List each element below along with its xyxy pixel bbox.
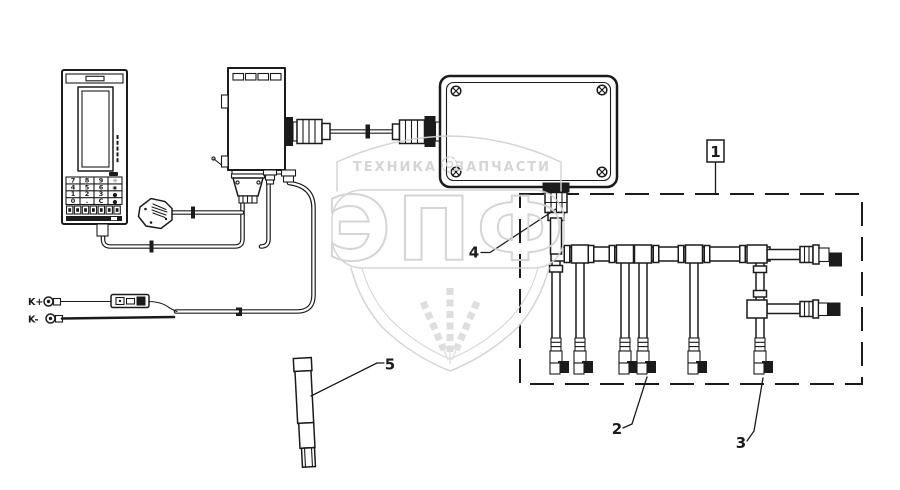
branch-connector (619, 338, 638, 374)
cable-ferrule (150, 241, 154, 253)
end-connector-lower (800, 300, 841, 318)
tee-junction (617, 245, 634, 263)
parts-diagram-canvas: K+ K- (0, 0, 900, 490)
pipe-collar (754, 291, 767, 298)
branch-connector (637, 338, 656, 374)
pipe-collar (588, 246, 594, 263)
callout-3-label: 3 (736, 434, 746, 452)
watermark-text-right: ЗАПЧАСТИ (455, 160, 551, 175)
tee-junction (635, 245, 652, 263)
keypad-function-icon: ● (113, 192, 118, 198)
operator-terminal: 7 8 9 4 5 6 1 2 3 0 . C ☼ ◉ ● ● (62, 70, 127, 236)
branch-connector (574, 338, 593, 374)
wheat-icon (423, 288, 477, 364)
positive-wire (148, 302, 177, 312)
corner-junction (747, 245, 767, 263)
callout-2: 2 (612, 377, 647, 438)
function-keys-row (67, 206, 121, 214)
harness-branch (767, 304, 800, 314)
tee-junction (747, 300, 767, 318)
gland-fitting (264, 170, 277, 184)
tee-junction (572, 245, 589, 263)
terminal-display (78, 87, 113, 171)
pipe-collar (754, 266, 767, 273)
callout-1: 1 (707, 140, 724, 194)
diagnostic-plug (139, 199, 173, 229)
branch-connector (550, 338, 569, 374)
wiring-diagram: K+ K- (0, 0, 900, 490)
keypad-key: 0 (71, 197, 76, 205)
dsub-connector (232, 174, 265, 203)
control-box-vents (233, 74, 281, 81)
screw-icon (597, 85, 607, 95)
keypad-function-icon: ● (113, 199, 118, 205)
end-connector-upper (800, 245, 842, 267)
callout-2-label: 2 (612, 420, 622, 438)
battery-leads: K+ K- (28, 295, 177, 326)
terminal-bottom-badge (111, 217, 117, 220)
callout-5-label: 5 (385, 356, 395, 374)
pipe-collar (678, 246, 684, 263)
battery-negative-label: K- (28, 315, 39, 326)
pipe-collar (609, 246, 615, 263)
battery-positive-label: K+ (28, 297, 43, 308)
watermark-main-text: ЭПФ (326, 178, 570, 281)
strap-part (293, 358, 317, 468)
harness-drop (690, 254, 698, 340)
pipe-collar (704, 246, 710, 263)
harness-drop (639, 254, 647, 340)
watermark-text-left: ТЕХНИКА (353, 160, 437, 175)
numeric-keypad: 7 8 9 4 5 6 1 2 3 0 . C ☼ ◉ ● ● (66, 176, 122, 205)
harness-branch (767, 250, 800, 260)
callout-1-label: 1 (710, 143, 720, 161)
terminal-top-slot (66, 74, 123, 83)
round-connector (285, 117, 330, 146)
harness-drop (621, 254, 629, 340)
pipe-collar (653, 246, 659, 263)
watermark-shield: ТЕХНИКА ЗАПЧАСТИ ЭПФ (326, 136, 570, 371)
fuse-holder (111, 295, 149, 308)
pipe-collar (740, 246, 746, 263)
screw-icon (597, 167, 607, 177)
ring-terminal-negative (46, 314, 63, 323)
screw-icon (451, 86, 461, 96)
cable-ferrule (191, 207, 195, 219)
keypad-key: . (86, 197, 88, 205)
keypad-key: C (99, 197, 104, 205)
power-fitting (282, 170, 296, 182)
terminal-cable-stem (97, 224, 108, 236)
toggle-switch (212, 156, 228, 167)
harness-drop (576, 254, 584, 340)
negative-wire (62, 317, 174, 319)
left-round-connector (393, 116, 441, 147)
branch-connector (754, 338, 773, 374)
keypad-function-icon: ◉ (113, 186, 118, 192)
control-box (212, 68, 330, 203)
branch-connector (688, 338, 707, 374)
tee-junction (686, 245, 703, 263)
callout-5: 5 (311, 356, 395, 397)
mounting-tab (222, 95, 229, 108)
callout-3: 3 (736, 378, 763, 452)
card-slot-icon (109, 172, 118, 176)
ring-terminal-positive (44, 297, 61, 306)
keypad-function-icon: ☼ (112, 178, 117, 185)
cable-ferrule (366, 125, 371, 139)
cable-harness (543, 183, 843, 375)
